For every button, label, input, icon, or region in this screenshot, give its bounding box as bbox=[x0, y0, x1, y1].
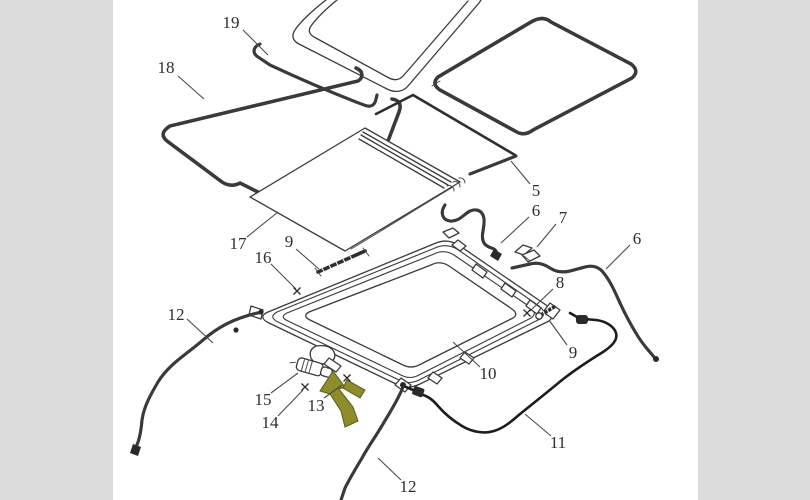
sunshade-17 bbox=[250, 128, 465, 251]
x-mark-1 bbox=[302, 384, 309, 391]
strip-5 bbox=[470, 156, 516, 174]
leader-line-15-15 bbox=[271, 373, 298, 393]
part-label-12-14: 12 bbox=[168, 305, 185, 324]
part-label-6-8: 6 bbox=[633, 229, 642, 248]
leader-line-9-4 bbox=[296, 249, 319, 269]
leader-line-6-6 bbox=[501, 217, 529, 243]
part-label-15-15: 15 bbox=[255, 390, 272, 409]
part-label-12-13: 12 bbox=[400, 477, 417, 496]
diagram-svg: 19181716956768910111212151413 bbox=[113, 0, 698, 500]
part-label-5-5: 5 bbox=[532, 181, 541, 200]
leader-line-5-5 bbox=[511, 161, 530, 184]
cable-11 bbox=[406, 313, 616, 432]
part-labels: 19181716956768910111212151413 bbox=[158, 13, 642, 496]
part-label-9-10: 9 bbox=[569, 343, 578, 362]
x-mark-3 bbox=[524, 310, 531, 317]
right-matte bbox=[697, 0, 810, 500]
diagram-screenshot: 19181716956768910111212151413 bbox=[0, 0, 810, 500]
part-label-16-3: 16 bbox=[255, 248, 272, 267]
part-label-13-17: 13 bbox=[308, 396, 325, 415]
highlight-arrow bbox=[320, 371, 365, 427]
drain-tube-12-rear bbox=[341, 382, 406, 500]
part-label-18-1: 18 bbox=[158, 58, 175, 77]
leader-line-11-12 bbox=[525, 414, 551, 436]
part-label-17-2: 17 bbox=[230, 234, 248, 253]
leader-line-14-16 bbox=[278, 390, 303, 416]
clip-7 bbox=[515, 245, 540, 262]
guide-rod-9 bbox=[315, 248, 369, 276]
sunroof-parts-diagram: 19181716956768910111212151413 bbox=[113, 0, 698, 500]
x-mark-0 bbox=[294, 288, 301, 295]
leader-line-12-14 bbox=[187, 319, 213, 343]
leader-line-7-7 bbox=[537, 224, 556, 247]
leader-line-12-13 bbox=[378, 458, 401, 480]
drain-tube-12-front bbox=[130, 309, 264, 456]
part-label-8-9: 8 bbox=[556, 273, 565, 292]
frame-10 bbox=[249, 228, 560, 392]
part-label-7-7: 7 bbox=[559, 208, 568, 227]
part-label-11-12: 11 bbox=[550, 433, 566, 452]
ring-seal bbox=[432, 19, 636, 134]
leader-line-17-2 bbox=[247, 212, 278, 237]
part-label-9-4: 9 bbox=[285, 232, 294, 251]
leader-line-18-1 bbox=[178, 76, 204, 99]
part-label-10-11: 10 bbox=[480, 364, 497, 383]
leader-line-9-10 bbox=[549, 320, 567, 345]
part-label-6-6: 6 bbox=[532, 201, 541, 220]
leader-line-6-8 bbox=[606, 245, 630, 269]
glass-panel bbox=[293, 0, 481, 91]
left-matte bbox=[0, 0, 114, 500]
leader-line-16-3 bbox=[271, 264, 296, 289]
leader-lines bbox=[178, 30, 630, 480]
part-label-19-0: 19 bbox=[223, 13, 240, 32]
part-label-14-16: 14 bbox=[262, 413, 280, 432]
